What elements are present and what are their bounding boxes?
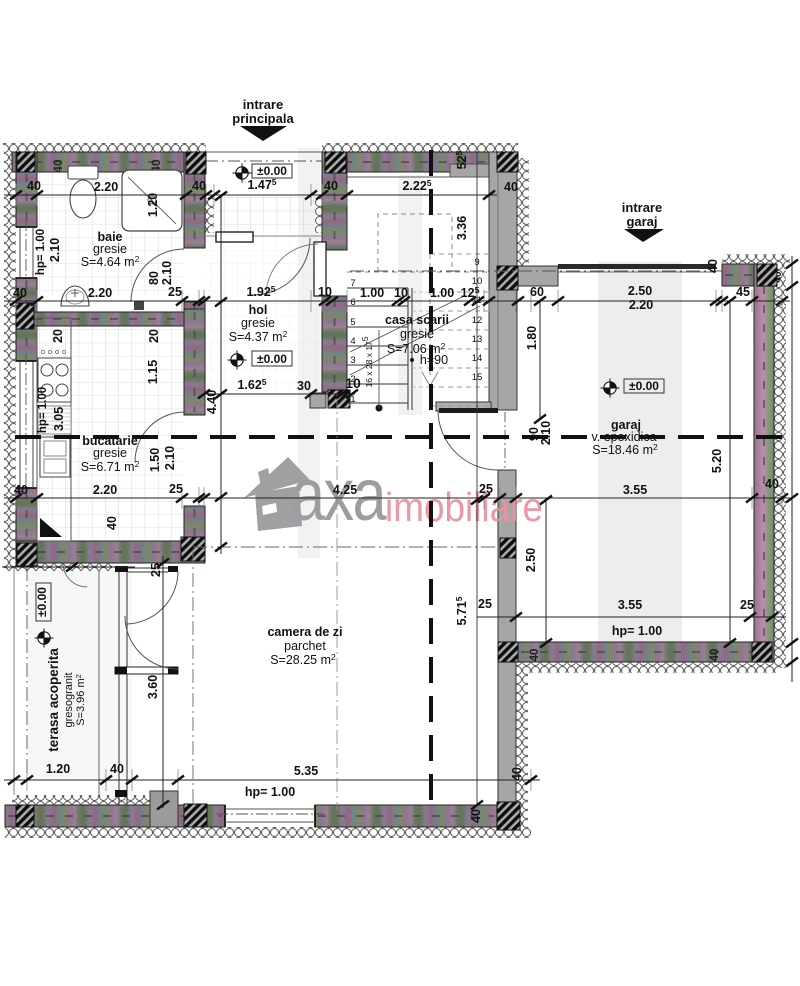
svg-text:25: 25 [169, 482, 183, 496]
svg-text:3.60: 3.60 [146, 675, 160, 699]
svg-text:gresie: gresie [93, 242, 127, 256]
svg-text:40: 40 [324, 179, 338, 193]
svg-text:S=4.64 m2: S=4.64 m2 [81, 254, 140, 269]
svg-text:2.20: 2.20 [629, 298, 653, 312]
svg-text:40: 40 [51, 159, 65, 173]
svg-text:casa scarii: casa scarii [385, 313, 449, 327]
svg-text:1.00: 1.00 [430, 286, 454, 300]
svg-text:gresie: gresie [400, 327, 434, 341]
svg-text:40: 40 [105, 516, 119, 530]
svg-text:2.50: 2.50 [524, 548, 538, 572]
svg-text:40: 40 [110, 762, 124, 776]
svg-text:1.00: 1.00 [360, 286, 384, 300]
svg-text:40: 40 [469, 809, 483, 823]
svg-text:±0.00: ±0.00 [257, 352, 287, 366]
svg-text:10: 10 [345, 375, 361, 391]
svg-text:3.55: 3.55 [618, 598, 642, 612]
svg-text:1.50: 1.50 [148, 448, 162, 472]
svg-text:S=18.46 m2: S=18.46 m2 [592, 442, 658, 457]
svg-text:40: 40 [27, 179, 41, 193]
svg-text:1.20: 1.20 [46, 762, 70, 776]
svg-text:S=28.25 m2: S=28.25 m2 [270, 652, 336, 667]
svg-text:±0.00: ±0.00 [35, 587, 49, 617]
svg-text:±0.00: ±0.00 [257, 164, 287, 178]
svg-text:3: 3 [350, 355, 355, 366]
svg-text:60: 60 [530, 285, 544, 299]
svg-text:7: 7 [350, 278, 355, 289]
svg-text:2.10: 2.10 [539, 421, 553, 445]
svg-text:40: 40 [765, 477, 779, 491]
svg-text:±0.00: ±0.00 [629, 379, 659, 393]
svg-text:camera de zi: camera de zi [267, 625, 342, 639]
svg-text:25: 25 [740, 598, 754, 612]
svg-text:4.40: 4.40 [205, 390, 219, 414]
svg-text:parchet: parchet [284, 639, 326, 653]
svg-text:gresie: gresie [241, 316, 275, 330]
svg-text:5.20: 5.20 [710, 449, 724, 473]
svg-text:4: 4 [350, 336, 355, 347]
svg-text:90: 90 [527, 427, 541, 441]
svg-text:hol: hol [249, 303, 268, 317]
svg-text:hp= 1.00: hp= 1.00 [612, 624, 662, 638]
svg-text:hp= 1.00: hp= 1.00 [35, 229, 47, 275]
svg-text:20: 20 [147, 329, 161, 343]
svg-text:80: 80 [147, 271, 161, 285]
svg-text:6: 6 [350, 297, 355, 308]
svg-text:1.15: 1.15 [146, 360, 160, 384]
svg-text:v. epoxidica: v. epoxidica [591, 430, 656, 444]
svg-text:40: 40 [706, 259, 720, 273]
svg-text:2.20: 2.20 [94, 180, 118, 194]
svg-text:25: 25 [479, 482, 493, 496]
svg-text:40: 40 [504, 180, 518, 194]
svg-text:40: 40 [529, 649, 541, 662]
svg-text:20: 20 [51, 329, 65, 343]
svg-text:40: 40 [510, 767, 524, 781]
svg-text:4.25: 4.25 [333, 483, 357, 497]
svg-text:10: 10 [394, 286, 408, 300]
svg-text:2.20: 2.20 [88, 286, 112, 300]
svg-text:S=6.71 m2: S=6.71 m2 [81, 459, 140, 474]
svg-text:3.05: 3.05 [52, 407, 66, 431]
svg-text:1.20: 1.20 [146, 193, 160, 217]
svg-text:5.35: 5.35 [294, 764, 318, 778]
svg-text:40: 40 [13, 286, 27, 300]
svg-text:imobiliare: imobiliare [385, 484, 543, 530]
svg-text:garaj: garaj [626, 214, 657, 229]
svg-text:hp= 1.00: hp= 1.00 [37, 387, 49, 433]
svg-text:25: 25 [478, 597, 492, 611]
svg-text:2.50: 2.50 [628, 284, 652, 298]
svg-text:hp= 1.00: hp= 1.00 [245, 785, 295, 799]
svg-text:40: 40 [14, 483, 28, 497]
svg-text:25: 25 [168, 285, 182, 299]
svg-text:25: 25 [149, 563, 163, 577]
svg-text:40: 40 [192, 179, 206, 193]
svg-text:h=90: h=90 [420, 353, 448, 367]
svg-text:30: 30 [297, 379, 311, 393]
svg-text:40: 40 [709, 649, 721, 662]
svg-text:gresie: gresie [93, 446, 127, 460]
svg-text:1.80: 1.80 [525, 326, 539, 350]
svg-text:S=3.96 m2: S=3.96 m2 [74, 674, 87, 726]
svg-text:3.55: 3.55 [623, 483, 647, 497]
svg-text:principala: principala [232, 111, 294, 126]
svg-text:3.36: 3.36 [455, 216, 469, 240]
svg-text:S=4.37 m2: S=4.37 m2 [229, 329, 288, 344]
svg-text:terasa acoperita: terasa acoperita [46, 648, 61, 752]
svg-text:2.10: 2.10 [160, 261, 174, 285]
svg-text:45: 45 [736, 285, 750, 299]
svg-text:2.10: 2.10 [163, 446, 177, 470]
svg-text:5: 5 [350, 317, 355, 328]
svg-text:2.10: 2.10 [48, 238, 62, 262]
svg-text:2.20: 2.20 [93, 483, 117, 497]
svg-text:10: 10 [318, 285, 332, 299]
svg-text:intrare: intrare [622, 200, 662, 215]
svg-text:gresogranit: gresogranit [63, 672, 75, 727]
svg-text:intrare: intrare [243, 97, 283, 112]
